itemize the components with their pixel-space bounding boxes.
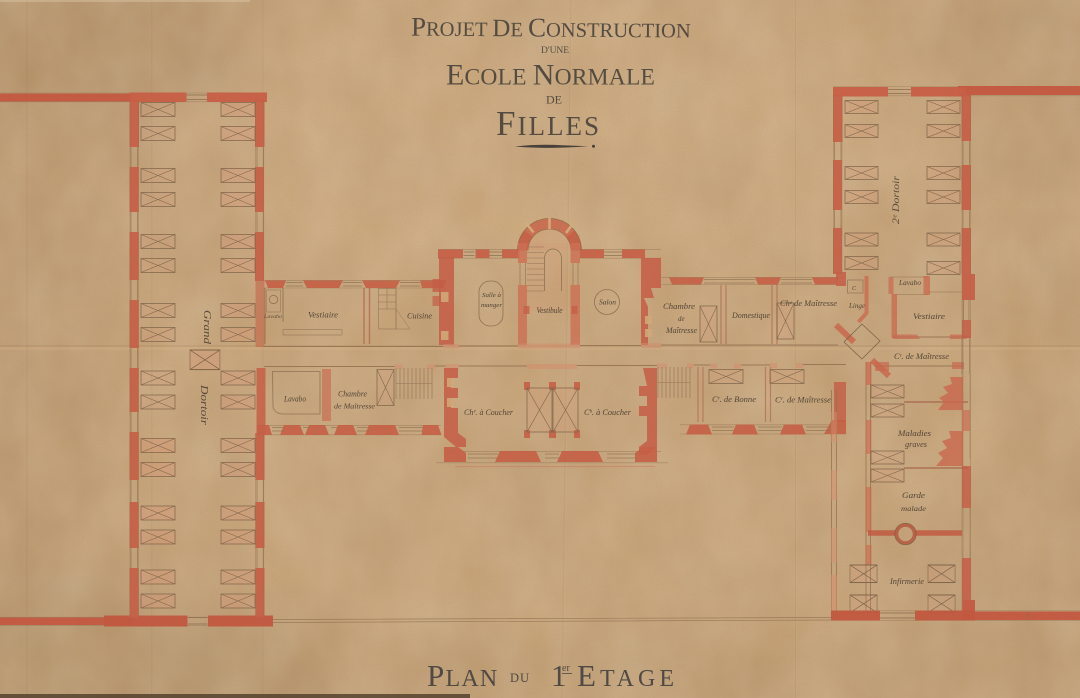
svg-text:Maîtresse: Maîtresse — [665, 326, 697, 335]
svg-text:Salon: Salon — [599, 299, 617, 307]
svg-text:Cʳ. de Maîtresse: Cʳ. de Maîtresse — [775, 395, 831, 405]
svg-text:Chambre: Chambre — [338, 390, 367, 399]
svg-text:Infirmerie: Infirmerie — [889, 577, 925, 586]
svg-text:DE: DE — [546, 93, 562, 107]
svg-text:DU: DU — [510, 671, 530, 685]
svg-text:Chᵉ de Maîtresse: Chᵉ de Maîtresse — [780, 299, 837, 308]
svg-text:Lavabo: Lavabo — [263, 314, 282, 320]
svg-text:Grand: Grand — [201, 310, 212, 345]
svg-text:manger: manger — [481, 302, 502, 309]
svg-text:Lavabo: Lavabo — [283, 395, 306, 404]
svg-text:Cʰ. à Coucher: Cʰ. à Coucher — [584, 407, 632, 417]
svg-text:2ᵉ Dortoir: 2ᵉ Dortoir — [892, 176, 902, 224]
svg-text:Cʳ. de Bonne: Cʳ. de Bonne — [712, 394, 756, 404]
svg-text:Garde: Garde — [902, 491, 925, 500]
svg-text:malade: malade — [901, 504, 927, 513]
svg-text:Maladies: Maladies — [897, 429, 931, 438]
svg-text:Dortoir: Dortoir — [198, 384, 209, 425]
svg-text:Vestiaire: Vestiaire — [913, 311, 945, 321]
svg-text:Lavabo: Lavabo — [898, 279, 922, 287]
svg-text:Salle à: Salle à — [482, 292, 501, 299]
svg-text:Chᵉ. à Coucher: Chᵉ. à Coucher — [464, 407, 514, 417]
svg-text:Vestibule: Vestibule — [537, 305, 563, 315]
svg-text:graves: graves — [905, 440, 927, 449]
svg-text:er: er — [562, 663, 570, 674]
svg-text:Cuisine: Cuisine — [407, 311, 432, 321]
svg-text:Linge: Linge — [848, 302, 865, 310]
svg-text:Domestique: Domestique — [731, 310, 770, 320]
svg-text:Vestiaire: Vestiaire — [308, 310, 338, 320]
svg-text:Cʳ. de Maîtresse: Cʳ. de Maîtresse — [894, 352, 949, 361]
svg-text:D'UNE: D'UNE — [541, 46, 569, 56]
svg-text:Chambre: Chambre — [663, 302, 695, 311]
svg-text:de: de — [678, 315, 685, 323]
svg-text:de Maîtresse: de Maîtresse — [334, 402, 376, 411]
